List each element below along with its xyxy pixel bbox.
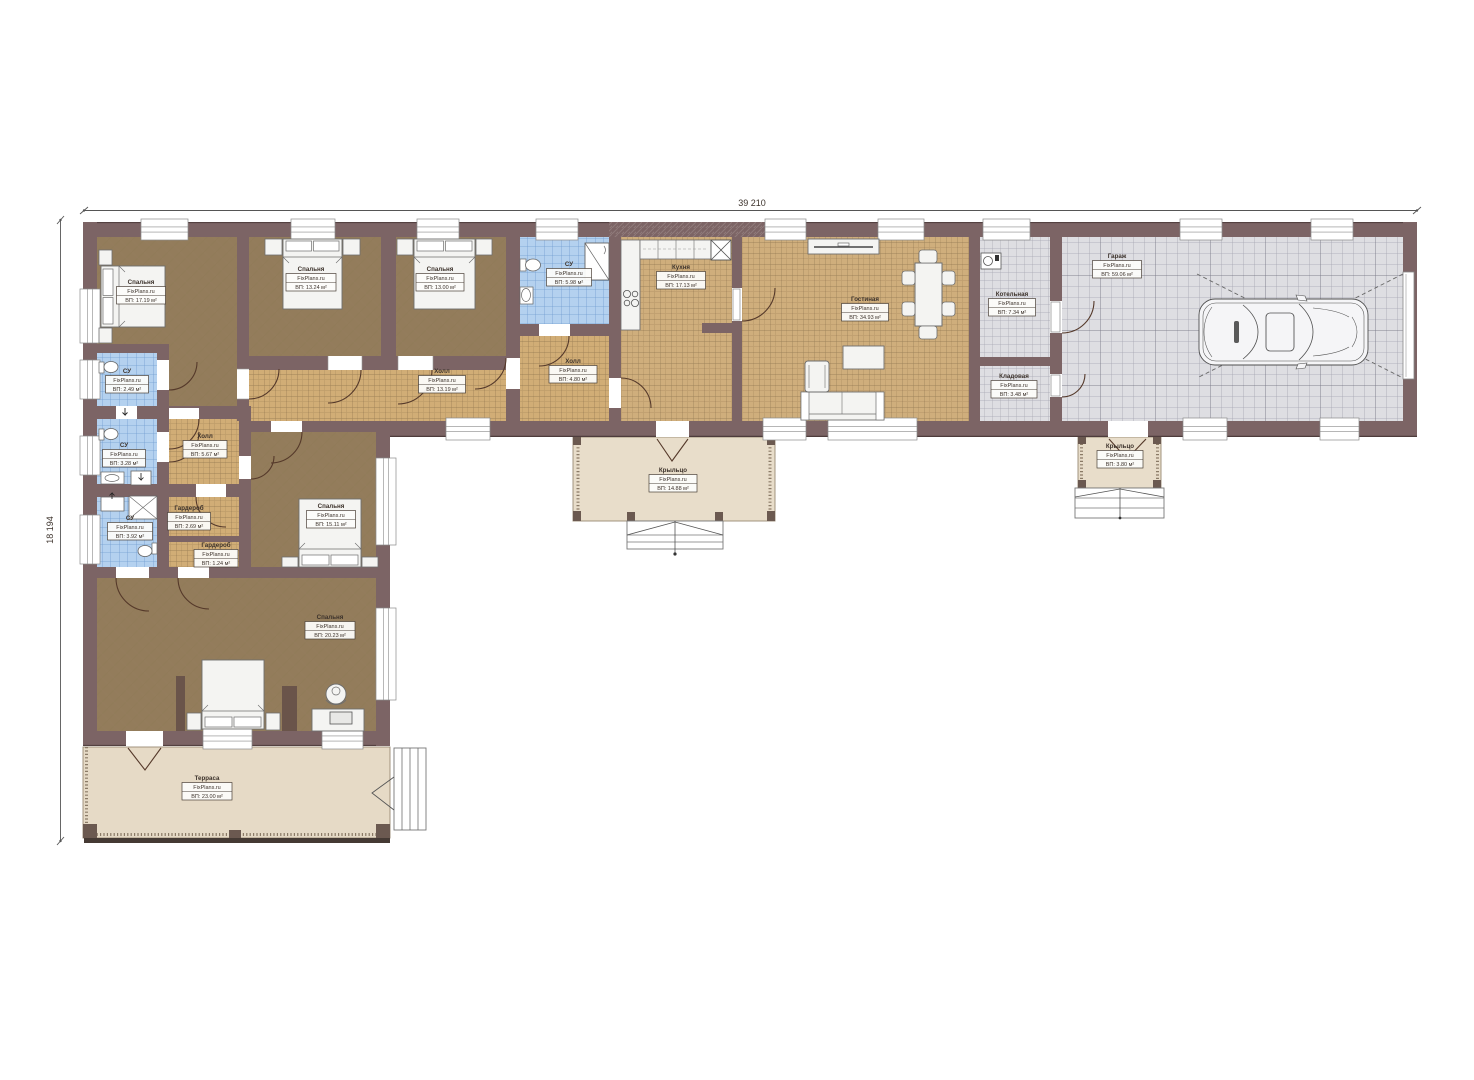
svg-text:Спальня: Спальня: [317, 614, 344, 621]
svg-text:ВП: 3.48 м²: ВП: 3.48 м²: [1000, 392, 1029, 398]
svg-text:FixPlans.ru: FixPlans.ru: [127, 289, 155, 295]
svg-text:ВП: 13.00 м²: ВП: 13.00 м²: [424, 285, 456, 291]
svg-text:СУ: СУ: [123, 368, 131, 375]
svg-text:ВП: 3.92 м²: ВП: 3.92 м²: [116, 534, 145, 540]
svg-text:Спальня: Спальня: [318, 503, 345, 510]
svg-text:Холл: Холл: [565, 358, 581, 365]
svg-text:ВП: 3.28 м²: ВП: 3.28 м²: [110, 461, 139, 467]
svg-text:FixPlans.ru: FixPlans.ru: [191, 443, 219, 449]
svg-text:Крыльцо: Крыльцо: [659, 467, 687, 474]
svg-text:FixPlans.ru: FixPlans.ru: [659, 477, 687, 483]
svg-text:ВП: 23.00 м²: ВП: 23.00 м²: [191, 794, 223, 800]
svg-text:ВП: 7.34 м²: ВП: 7.34 м²: [998, 310, 1027, 316]
svg-text:FixPlans.ru: FixPlans.ru: [426, 276, 454, 282]
svg-text:FixPlans.ru: FixPlans.ru: [316, 624, 344, 630]
svg-text:ВП: 2.49 м²: ВП: 2.49 м²: [113, 387, 142, 393]
svg-text:FixPlans.ru: FixPlans.ru: [317, 513, 345, 519]
svg-text:ВП: 4.80 м²: ВП: 4.80 м²: [559, 377, 588, 383]
svg-text:СУ: СУ: [565, 261, 573, 268]
svg-text:ВП: 1.24 м²: ВП: 1.24 м²: [202, 561, 231, 567]
svg-text:ВП: 5.98 м²: ВП: 5.98 м²: [555, 280, 584, 286]
svg-text:ВП: 14.88 м²: ВП: 14.88 м²: [657, 486, 689, 492]
svg-text:FixPlans.ru: FixPlans.ru: [175, 515, 203, 521]
svg-text:ВП: 13.19 м²: ВП: 13.19 м²: [426, 387, 458, 393]
svg-text:FixPlans.ru: FixPlans.ru: [116, 525, 144, 531]
svg-text:Кухня: Кухня: [672, 264, 690, 271]
svg-text:ВП: 3.80 м²: ВП: 3.80 м²: [1106, 462, 1135, 468]
svg-text:ВП: 2.69 м²: ВП: 2.69 м²: [175, 524, 204, 530]
svg-text:18 194: 18 194: [45, 516, 55, 544]
svg-text:ВП: 20.23 м²: ВП: 20.23 м²: [314, 633, 346, 639]
svg-text:ВП: 17.13 м²: ВП: 17.13 м²: [665, 283, 697, 289]
svg-text:FixPlans.ru: FixPlans.ru: [998, 301, 1026, 307]
svg-text:Гараж: Гараж: [1108, 253, 1127, 260]
svg-text:FixPlans.ru: FixPlans.ru: [559, 368, 587, 374]
svg-text:FixPlans.ru: FixPlans.ru: [667, 274, 695, 280]
svg-text:FixPlans.ru: FixPlans.ru: [555, 271, 583, 277]
svg-text:Кладовая: Кладовая: [999, 373, 1029, 380]
svg-text:FixPlans.ru: FixPlans.ru: [297, 276, 325, 282]
svg-text:СУ: СУ: [126, 515, 134, 522]
svg-text:Холл: Холл: [434, 368, 450, 375]
svg-text:ВП: 13.24 м²: ВП: 13.24 м²: [295, 285, 327, 291]
svg-text:ВП: 17.19 м²: ВП: 17.19 м²: [125, 298, 157, 304]
svg-text:FixPlans.ru: FixPlans.ru: [1103, 263, 1131, 269]
svg-text:Спальня: Спальня: [427, 266, 454, 273]
svg-text:Спальня: Спальня: [298, 266, 325, 273]
svg-text:FixPlans.ru: FixPlans.ru: [202, 552, 230, 558]
svg-text:Котельная: Котельная: [996, 291, 1029, 298]
svg-text:Холл: Холл: [197, 433, 213, 440]
svg-text:СУ: СУ: [120, 442, 128, 449]
svg-text:Гардероб: Гардероб: [201, 542, 230, 549]
svg-text:Гостиная: Гостиная: [851, 296, 879, 303]
svg-text:Крыльцо: Крыльцо: [1106, 443, 1134, 450]
svg-text:39 210: 39 210: [738, 198, 766, 208]
svg-text:ВП: 5.67 м²: ВП: 5.67 м²: [191, 452, 220, 458]
svg-text:FixPlans.ru: FixPlans.ru: [113, 378, 141, 384]
svg-text:Спальня: Спальня: [128, 279, 155, 286]
svg-text:ВП: 15.11 м²: ВП: 15.11 м²: [315, 522, 346, 528]
svg-text:Терраса: Терраса: [195, 775, 220, 782]
svg-text:ВП: 34.93 м²: ВП: 34.93 м²: [849, 315, 881, 321]
svg-text:Гардероб: Гардероб: [174, 505, 203, 512]
svg-text:ВП: 59.06 м²: ВП: 59.06 м²: [1101, 272, 1133, 278]
svg-text:FixPlans.ru: FixPlans.ru: [110, 452, 138, 458]
svg-text:FixPlans.ru: FixPlans.ru: [1106, 453, 1134, 459]
svg-text:FixPlans.ru: FixPlans.ru: [193, 785, 221, 791]
svg-text:FixPlans.ru: FixPlans.ru: [428, 378, 456, 384]
svg-text:FixPlans.ru: FixPlans.ru: [851, 306, 879, 312]
svg-text:FixPlans.ru: FixPlans.ru: [1000, 383, 1028, 389]
